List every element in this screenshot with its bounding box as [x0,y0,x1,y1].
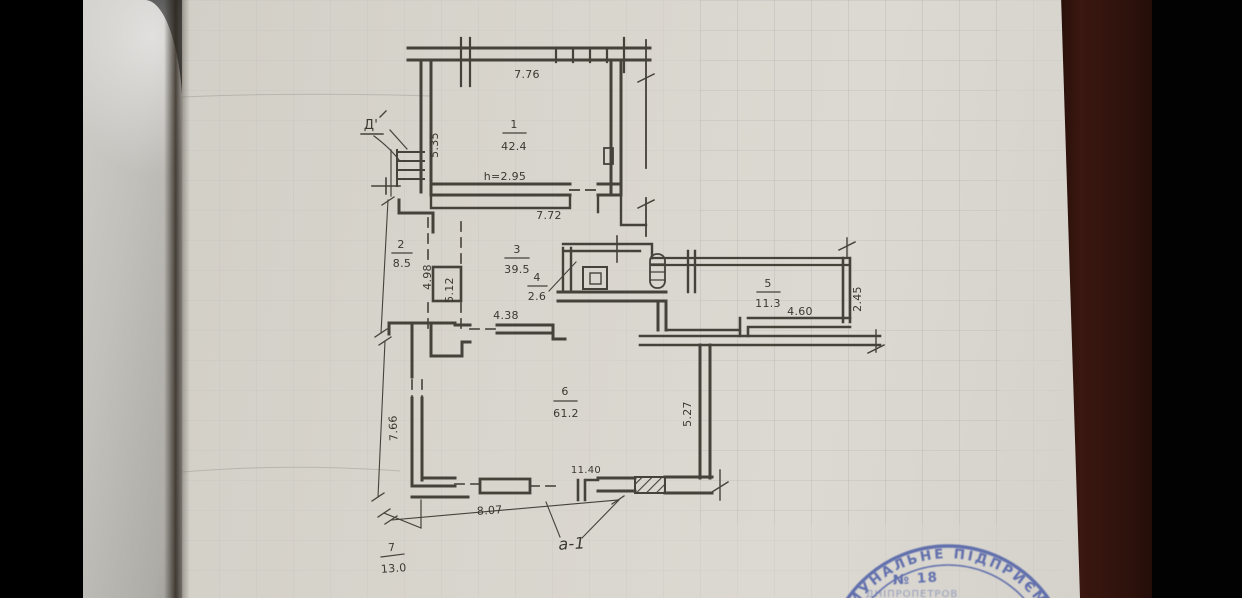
round-stamp: МУНАЛЬНЕ ПІДПРИЄМ № 18 ДНІПРОПЕТРОВ [826,546,1070,598]
dim-ceiling-height: h=2.95 [484,170,526,183]
dim-hall-width: 4.38 [493,309,519,322]
room5-number: 5 [764,277,771,290]
dim-left-inner: 5.12 [443,277,456,303]
dim-bottom-left-num: 7 [388,541,396,554]
room-labels: 1 42.4 2 8.5 3 39.5 4 2.6 5 11.3 6 61.2 [392,118,781,420]
room5-area: 11.3 [755,297,781,310]
walls-toilet [549,236,695,330]
dim-left-lower: 7.66 [387,415,401,441]
room3-number: 3 [513,243,520,256]
room2-area: 8.5 [393,257,411,270]
room6-area: 61.2 [553,407,579,420]
dim-room5-width: 4.60 [787,305,813,318]
dim-bottom-left: 13.0 [380,561,407,576]
walls-room5 [640,238,884,353]
section-mark-label: a-1 [558,533,586,553]
stamp-number: № 18 [892,569,939,588]
dim-room6-bottom: 11.40 [571,465,601,476]
room3-area: 39.5 [504,263,530,276]
room1-number: 1 [510,118,517,131]
dim-room6-right: 5.27 [681,401,694,427]
room4-area: 2.6 [528,290,546,303]
entry-point-label: Д' [364,118,378,133]
dim-top-width: 7.76 [514,68,540,81]
room6-number: 6 [561,385,568,398]
dim-corridor-width: 7.72 [536,209,562,222]
room1-area: 42.4 [501,140,527,153]
photo-of-floor-plan-page: 1 42.4 2 8.5 3 39.5 4 2.6 5 11.3 6 61.2 … [0,0,1242,598]
dim-room5-right: 2.45 [851,286,864,312]
room2-number: 2 [397,238,404,251]
stamp-sub-text: ДНІПРОПЕТРОВ [866,589,958,598]
dim-left-upper: 4.98 [421,264,434,290]
dimension-lines-bottom [372,337,624,557]
floor-plan-drawing: 1 42.4 2 8.5 3 39.5 4 2.6 5 11.3 6 61.2 … [0,0,1242,598]
dim-bottom-width: 8.07 [476,503,503,518]
room4-number: 4 [533,271,540,284]
dim-room1-left: 5.35 [428,132,441,158]
